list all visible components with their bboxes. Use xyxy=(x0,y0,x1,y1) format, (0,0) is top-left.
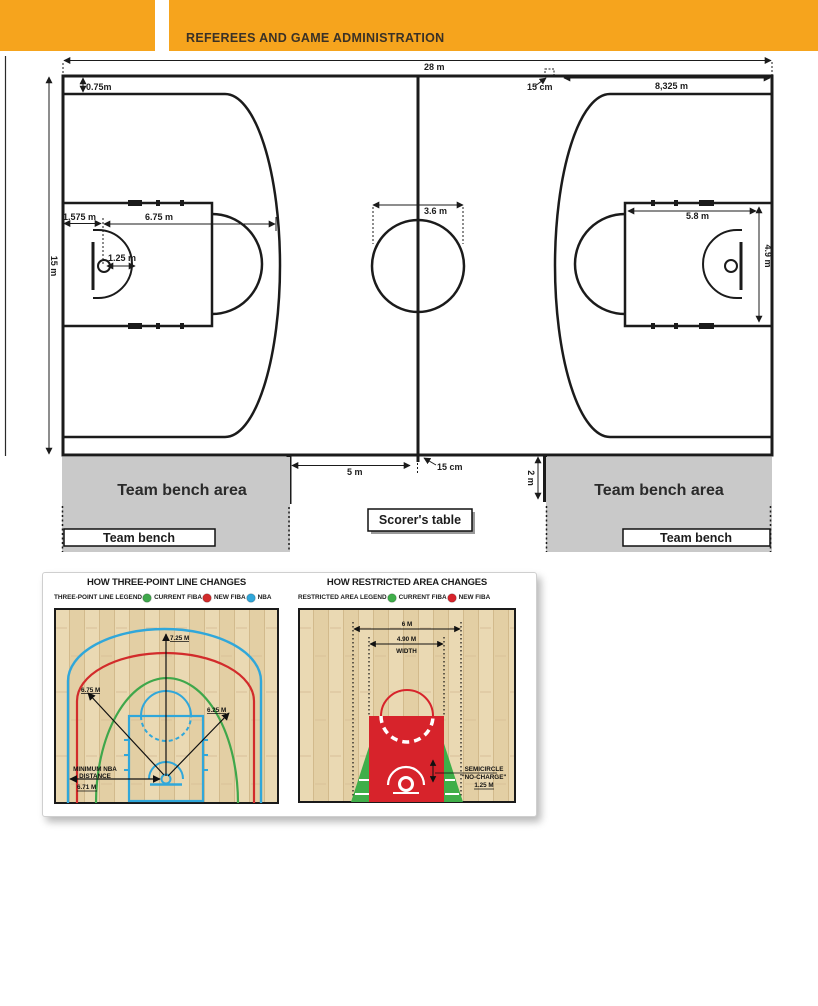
dimension-labels: 28 m 15 m 0.75m 15 cm 8,325 m 1.575 m 6.… xyxy=(49,62,773,486)
semicircle-label-1: SEMICIRCLE xyxy=(465,766,504,773)
key-right xyxy=(625,203,772,326)
legend-item-current-fiba: CURRENT FIBA xyxy=(142,593,202,603)
team-bench-area-left-label: Team bench area xyxy=(117,482,247,499)
dim-bench-line-length: 2 m xyxy=(526,470,536,486)
team-bench-left-label: Team bench xyxy=(103,531,175,545)
legend-item-new-fiba: NEW FIBA xyxy=(447,593,491,603)
dim-court-length: 28 m xyxy=(424,62,445,72)
legend-item-new-fiba: NEW FIBA xyxy=(202,593,246,603)
min-nba-value: 6.71 M xyxy=(77,784,96,791)
dim-no-charge-radius: 1.25 m xyxy=(108,253,136,263)
inner-width-label: 4.90 M xyxy=(397,636,416,643)
semicircle-value: 1.25 M xyxy=(474,782,493,789)
restricted-area-title: HOW RESTRICTED AREA CHANGES xyxy=(298,577,516,589)
new-fiba-radius-label: 6.75 M xyxy=(81,687,100,694)
legend-dot-icon xyxy=(246,593,256,603)
legend-dot-icon xyxy=(202,593,212,603)
dim-center-line-extension: 15 cm xyxy=(437,462,463,472)
legend-item-nba: NBA xyxy=(246,593,272,603)
three-point-figure: HOW THREE-POINT LINE CHANGES THREE-POINT… xyxy=(54,577,279,809)
dim-throw-in-to-baseline: 8,325 m xyxy=(655,81,688,91)
dim-key-length: 5.8 m xyxy=(686,211,709,221)
page-title: REFEREES AND GAME ADMINISTRATION xyxy=(186,31,444,45)
team-bench-area-right-label: Team bench area xyxy=(594,482,724,499)
legend-item-label: NEW FIBA xyxy=(459,594,491,601)
min-nba-label-1: MINIMUM NBA xyxy=(73,766,117,773)
court-lines xyxy=(63,69,772,504)
restricted-area-figure: HOW RESTRICTED AREA CHANGES RESTRICTED A… xyxy=(298,577,516,808)
dimension-lines xyxy=(49,61,772,500)
dim-three-point-radius: 6.75 m xyxy=(145,212,173,222)
free-throw-arc-right xyxy=(575,214,625,314)
dim-bench-to-center: 5 m xyxy=(347,467,363,477)
three-point-title: HOW THREE-POINT LINE CHANGES xyxy=(54,577,279,589)
dim-court-width: 15 m xyxy=(49,256,59,277)
dim-line-offset: 0.75m xyxy=(86,82,112,92)
legend-dot-icon xyxy=(447,593,457,603)
dim-key-width: 4.9 m xyxy=(763,244,773,267)
restricted-area-court: 6 M 4.90 M WIDTH SEMICIRCLE "NO-CHARGE" … xyxy=(298,608,516,803)
legend-item-label: CURRENT FIBA xyxy=(154,594,202,601)
figures-card: HOW THREE-POINT LINE CHANGES THREE-POINT… xyxy=(42,572,537,817)
legend-item-label: NEW FIBA xyxy=(214,594,246,601)
three-point-line-right xyxy=(555,94,772,437)
court-diagram: Team bench area Team bench area Team ben… xyxy=(0,55,818,561)
outer-width-label: 6 M xyxy=(402,621,413,628)
three-point-legend: THREE-POINT LINE LEGEND CURRENT FIBA NEW… xyxy=(54,591,279,604)
legend-dot-icon xyxy=(142,593,152,603)
team-bench-right-label: Team bench xyxy=(660,531,732,545)
legend-item-label: NBA xyxy=(258,594,272,601)
dim-throw-in-mark: 15 cm xyxy=(527,82,553,92)
legend-dot-icon xyxy=(387,593,397,603)
free-throw-arc-left xyxy=(212,214,262,314)
header-bar: REFEREES AND GAME ADMINISTRATION xyxy=(169,0,818,51)
three-point-line-left xyxy=(63,94,280,437)
header-accent-block xyxy=(0,0,155,51)
three-point-court: 7.25 M 6.75 M 6.25 M MINIMUM NBA DISTANC… xyxy=(54,608,279,804)
legend-label: RESTRICTED AREA LEGEND xyxy=(298,594,387,601)
current-fiba-radius-label: 6.25 M xyxy=(207,707,226,714)
scorers-table-label: Scorer's table xyxy=(379,513,461,527)
hoop-right xyxy=(725,260,737,272)
dim-baseline-to-hoop: 1.575 m xyxy=(63,212,96,222)
legend-item-current-fiba: CURRENT FIBA xyxy=(387,593,447,603)
dim-center-circle: 3.6 m xyxy=(424,206,447,216)
semicircle-label-2: "NO-CHARGE" xyxy=(462,774,507,781)
nba-radius-label: 7.25 M xyxy=(170,635,189,642)
legend-label: THREE-POINT LINE LEGEND xyxy=(54,594,142,601)
restricted-area-legend: RESTRICTED AREA LEGEND CURRENT FIBA NEW … xyxy=(298,591,516,604)
min-nba-label-2: DISTANCE xyxy=(79,773,111,780)
inner-width-sublabel: WIDTH xyxy=(396,648,417,655)
legend-item-label: CURRENT FIBA xyxy=(399,594,447,601)
